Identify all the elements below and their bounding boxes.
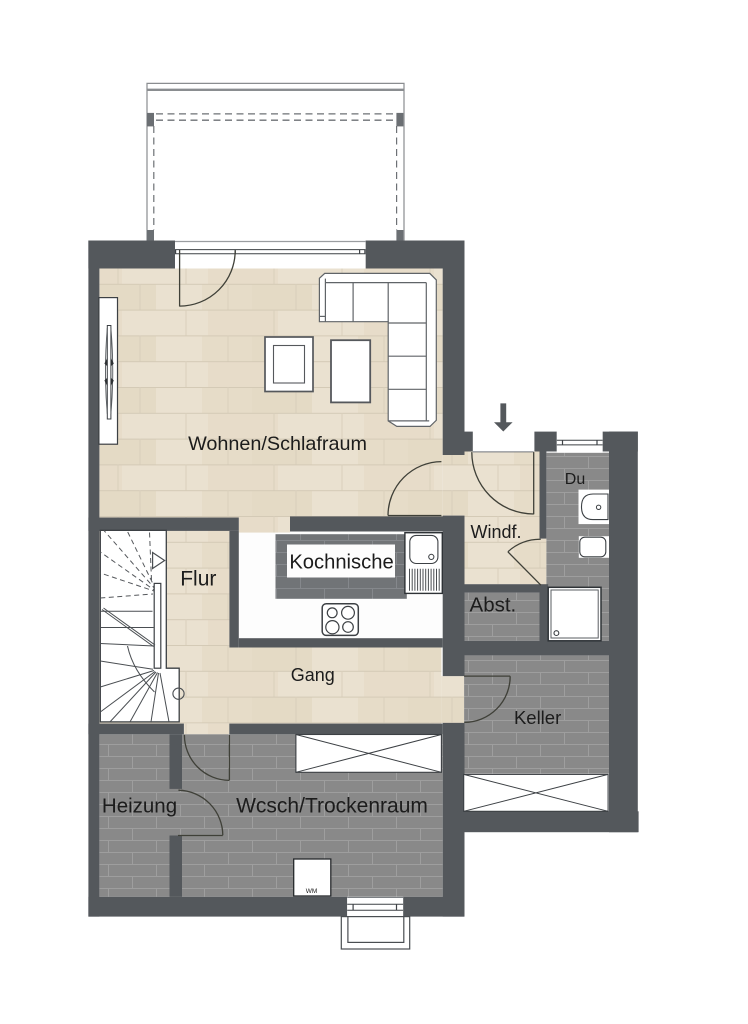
- svg-text:Gang: Gang: [291, 665, 335, 685]
- svg-text:Du: Du: [565, 471, 585, 488]
- svg-text:Wohnen/Schlafraum: Wohnen/Schlafraum: [188, 433, 367, 455]
- svg-text:Abst.: Abst.: [470, 594, 517, 617]
- svg-text:Heizung: Heizung: [102, 794, 177, 817]
- svg-text:Flur: Flur: [180, 568, 216, 591]
- svg-text:Wcsch/Trockenraum: Wcsch/Trockenraum: [236, 794, 428, 817]
- svg-text:Windf.: Windf.: [470, 522, 521, 542]
- svg-text:Keller: Keller: [514, 707, 561, 728]
- svg-text:Kochnische: Kochnische: [289, 551, 393, 573]
- svg-text:WM: WM: [306, 888, 318, 895]
